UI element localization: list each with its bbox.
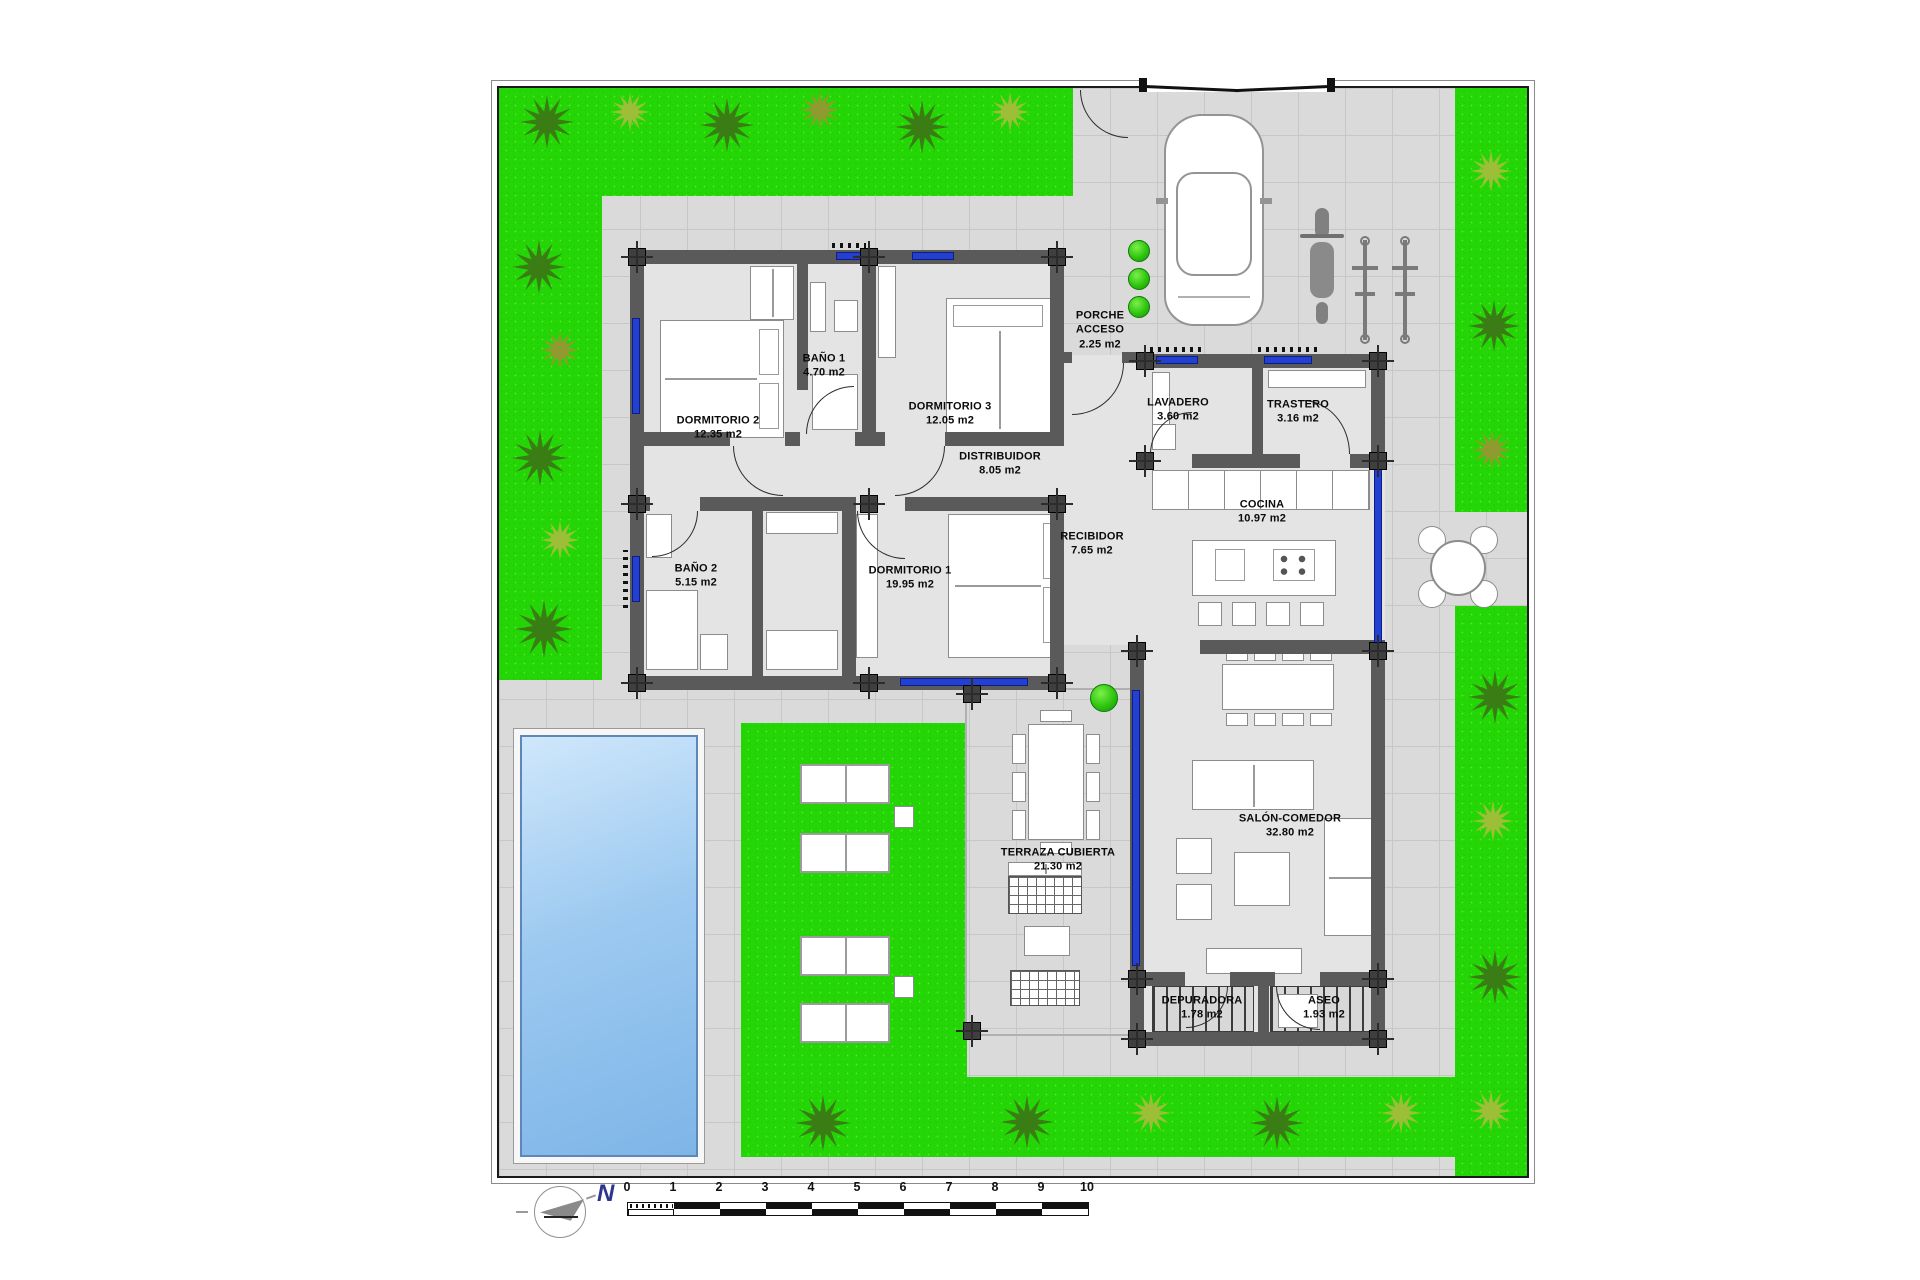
scale-tick: 3 <box>762 1180 769 1194</box>
sofa <box>1192 760 1314 810</box>
dining-table <box>1222 664 1334 710</box>
north-arrow-dash <box>586 1194 596 1199</box>
patio-round-table <box>1430 540 1486 596</box>
motorcycle-icon <box>1300 208 1344 324</box>
side-table <box>1024 926 1070 956</box>
room-label-trastero: TRASTERO3.16 m2 <box>1267 398 1329 427</box>
column-marker <box>1136 452 1154 470</box>
terrace-slatted-mat <box>1010 970 1080 1006</box>
room-label-terraza-cubierta: TERRAZA CUBIERTA21.30 m2 <box>1001 846 1115 875</box>
room-label-dormitorio-2: DORMITORIO 212.35 m2 <box>677 414 760 443</box>
room-label-bano-2: BAÑO 25.15 m2 <box>675 562 718 591</box>
room-name: TERRAZA CUBIERTA <box>1001 846 1115 860</box>
room-area: 3.60 m2 <box>1147 410 1209 424</box>
north-arrow-baseline <box>544 1216 578 1218</box>
room-area: 21.30 m2 <box>1001 860 1115 874</box>
north-label: N <box>597 1180 614 1208</box>
room-name: PORCHE ACCESO <box>1061 309 1139 338</box>
room-area: 19.95 m2 <box>869 578 952 592</box>
room-area: 5.15 m2 <box>675 576 718 590</box>
armchair <box>1176 838 1212 874</box>
column-marker <box>1369 642 1387 660</box>
chair <box>1086 734 1100 764</box>
room-area: 3.16 m2 <box>1267 412 1329 426</box>
chair <box>1254 713 1276 726</box>
room-name: DEPURADORA <box>1162 994 1243 1008</box>
wall-segment <box>862 250 876 446</box>
gate-post <box>1139 78 1147 92</box>
room-area: 10.97 m2 <box>1238 512 1286 526</box>
column-marker <box>628 495 646 513</box>
armchair <box>1176 884 1212 920</box>
bush-icon <box>1128 268 1150 290</box>
wall-segment <box>630 250 644 690</box>
column-marker <box>1128 642 1146 660</box>
window-vent-ticks <box>1258 347 1318 352</box>
room-label-cocina: COCINA10.97 m2 <box>1238 498 1286 527</box>
chair <box>1086 772 1100 802</box>
sun-lounger-pair <box>800 936 890 976</box>
column-marker <box>1369 970 1387 988</box>
scale-tick: 7 <box>946 1180 953 1194</box>
column-marker <box>1128 970 1146 988</box>
wall-segment <box>1200 640 1385 654</box>
wall-segment <box>1192 454 1300 468</box>
room-name: COCINA <box>1238 498 1286 512</box>
column-marker <box>860 248 878 266</box>
column-marker <box>860 674 878 692</box>
scale-tick: 5 <box>854 1180 861 1194</box>
room-name: BAÑO 2 <box>675 562 718 576</box>
window-glass <box>1156 356 1198 364</box>
sun-lounger-pair <box>800 833 890 873</box>
room-area: 1.93 m2 <box>1303 1008 1345 1022</box>
room-label-dormitorio-1: DORMITORIO 119.95 m2 <box>869 564 952 593</box>
room-area: 7.65 m2 <box>1060 544 1124 558</box>
room-name: BAÑO 1 <box>803 352 846 366</box>
scale-tick: 0 <box>624 1180 631 1194</box>
room-label-aseo: ASEO1.93 m2 <box>1303 994 1345 1023</box>
scale-tick: 4 <box>808 1180 815 1194</box>
scale-tick: 10 <box>1080 1180 1094 1194</box>
bathtub <box>646 590 698 670</box>
room-label-recibidor: RECIBIDOR7.65 m2 <box>1060 530 1124 559</box>
window-glass <box>1264 356 1312 364</box>
stool <box>1300 602 1324 626</box>
wall-segment <box>1062 352 1072 363</box>
column-marker <box>628 674 646 692</box>
window-glass <box>912 252 954 260</box>
column-marker <box>1048 248 1066 266</box>
window-vent-ticks <box>623 550 628 608</box>
closet-shelf <box>766 512 838 534</box>
column-marker <box>1048 495 1066 513</box>
window-glass <box>632 556 640 602</box>
room-area: 12.35 m2 <box>677 428 760 442</box>
room-name: SALÓN-COMEDOR <box>1239 812 1341 826</box>
room-label-distribuidor: DISTRIBUIDOR8.05 m2 <box>959 450 1041 479</box>
column-marker <box>1369 352 1387 370</box>
room-area: 12.05 m2 <box>909 414 992 428</box>
scale-tick: 1 <box>670 1180 677 1194</box>
scale-bar <box>627 1202 1089 1216</box>
room-name: TRASTERO <box>1267 398 1329 412</box>
room-area: 2.25 m2 <box>1061 337 1139 351</box>
scale-tick: 6 <box>900 1180 907 1194</box>
wall-segment <box>945 432 1064 446</box>
wall-segment <box>1138 1032 1385 1046</box>
column-marker <box>1048 674 1066 692</box>
room-name: DORMITORIO 3 <box>909 400 992 414</box>
chair <box>1012 772 1026 802</box>
bathroom-sink <box>810 282 826 332</box>
terrace-slatted-mat <box>1008 876 1082 914</box>
sun-lounger-pair <box>800 1003 890 1043</box>
column-marker <box>963 685 981 703</box>
room-area: 4.70 m2 <box>803 366 846 380</box>
chair <box>1282 713 1304 726</box>
room-label-salon-comedor: SALÓN-COMEDOR32.80 m2 <box>1239 812 1341 841</box>
garden-left-strip <box>499 88 602 680</box>
column-marker <box>1128 1030 1146 1048</box>
coffee-table <box>1234 852 1290 906</box>
side-table <box>894 976 914 998</box>
window-glass <box>632 318 640 414</box>
window-glass <box>1374 466 1382 644</box>
terrace-table <box>1028 724 1084 840</box>
bicycle-icon <box>1392 236 1418 346</box>
chair <box>1086 810 1100 840</box>
wardrobe <box>878 266 896 358</box>
side-table <box>894 806 914 828</box>
car-icon <box>1164 114 1264 326</box>
scale-tick: 9 <box>1038 1180 1045 1194</box>
bed-double <box>948 514 1062 658</box>
room-label-bano-1: BAÑO 14.70 m2 <box>803 352 846 381</box>
column-marker <box>1369 452 1387 470</box>
bush-icon <box>1128 240 1150 262</box>
room-name: LAVADERO <box>1147 396 1209 410</box>
column-marker <box>1136 352 1154 370</box>
kitchen-island <box>1192 540 1336 596</box>
wall-segment <box>855 432 885 446</box>
chair <box>1012 810 1026 840</box>
room-label-porche-acceso: PORCHE ACCESO2.25 m2 <box>1061 309 1139 352</box>
chair <box>1040 710 1072 722</box>
toilet <box>834 300 858 332</box>
closet-shelf <box>766 630 838 670</box>
bench <box>1206 948 1302 974</box>
room-area: 1.78 m2 <box>1162 1008 1243 1022</box>
column-marker <box>1369 1030 1387 1048</box>
room-label-lavadero: LAVADERO3.60 m2 <box>1147 396 1209 425</box>
storage-shelf <box>1268 370 1366 388</box>
scale-tick: 8 <box>992 1180 999 1194</box>
floor-plan-canvas: DORMITORIO 212.35 m2 BAÑO 14.70 m2 DORMI… <box>0 0 1920 1280</box>
wall-segment <box>1252 354 1263 468</box>
toilet <box>700 634 728 670</box>
room-name: DORMITORIO 2 <box>677 414 760 428</box>
room-area: 32.80 m2 <box>1239 826 1341 840</box>
room-name: RECIBIDOR <box>1060 530 1124 544</box>
column-marker <box>963 1022 981 1040</box>
chair <box>1012 734 1026 764</box>
stool <box>1232 602 1256 626</box>
room-label-dormitorio-3: DORMITORIO 312.05 m2 <box>909 400 992 429</box>
wall-segment <box>1050 497 1064 690</box>
stool <box>1266 602 1290 626</box>
room-label-depuradora: DEPURADORA1.78 m2 <box>1162 994 1243 1023</box>
scale-tick: 2 <box>716 1180 723 1194</box>
gate-post <box>1327 78 1335 92</box>
room-name: DORMITORIO 1 <box>869 564 952 578</box>
sun-lounger-pair <box>800 764 890 804</box>
wall-segment <box>752 497 763 690</box>
bush-icon <box>1090 684 1118 712</box>
window-glass <box>1132 690 1140 966</box>
wall-segment <box>842 497 856 690</box>
room-name: DISTRIBUIDOR <box>959 450 1041 464</box>
window-vent-ticks <box>1150 347 1204 352</box>
north-arrow-dash <box>516 1211 528 1213</box>
wall-segment <box>785 432 800 446</box>
room-area: 8.05 m2 <box>959 464 1041 478</box>
bicycle-icon <box>1352 236 1378 346</box>
room-name: ASEO <box>1303 994 1345 1008</box>
chair <box>1310 713 1332 726</box>
column-marker <box>628 248 646 266</box>
swimming-pool <box>520 735 698 1157</box>
chair <box>1226 713 1248 726</box>
wardrobe <box>750 266 794 320</box>
stool <box>1198 602 1222 626</box>
wall-segment <box>700 497 855 511</box>
